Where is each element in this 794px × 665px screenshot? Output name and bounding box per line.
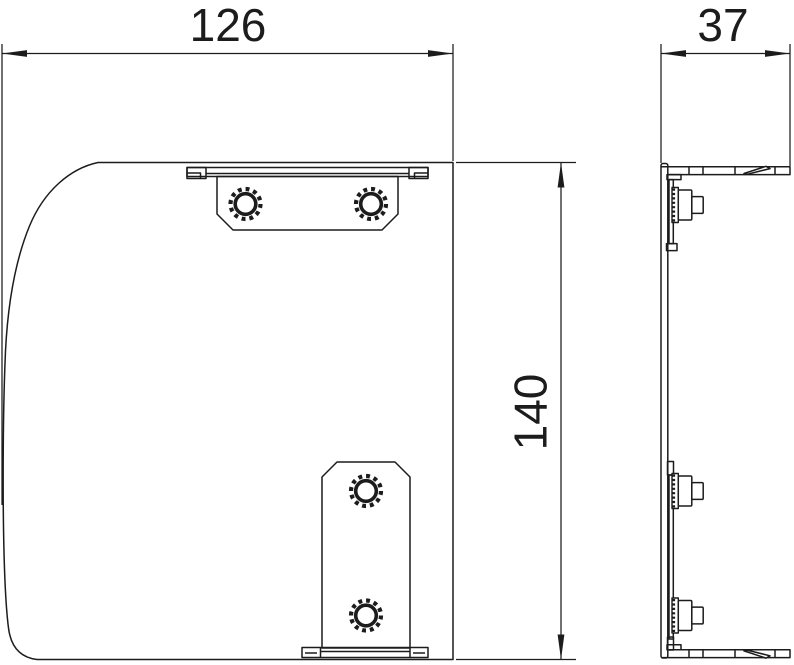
arrowhead xyxy=(765,50,790,57)
technical-drawing: 126 37 140 xyxy=(0,0,794,665)
dimension-height-label: 140 xyxy=(505,374,557,451)
front-top-bracket xyxy=(217,177,398,231)
bolt-profile xyxy=(672,474,703,509)
dimension-height: 140 xyxy=(456,163,576,660)
front-body-outline xyxy=(3,163,453,660)
bolt-profile xyxy=(672,598,703,633)
arrowhead xyxy=(558,163,565,188)
arrowhead xyxy=(558,635,565,660)
arrowhead xyxy=(428,50,453,57)
dimensions: 126 37 140 xyxy=(2,0,790,660)
side-view xyxy=(661,164,790,659)
dimension-depth-label: 37 xyxy=(697,0,748,51)
arrowhead xyxy=(661,50,686,57)
top-bracket-plate xyxy=(217,177,398,231)
arrowhead xyxy=(2,50,27,57)
dimension-depth: 37 xyxy=(661,0,790,166)
lock-washer xyxy=(351,476,381,506)
front-bottom-rail xyxy=(302,648,428,658)
top-rail-bar xyxy=(187,168,428,177)
dimension-width: 126 xyxy=(2,0,453,505)
lock-washer xyxy=(351,601,381,631)
lock-washer xyxy=(231,189,261,219)
side-plate xyxy=(661,164,668,659)
side-top-flange xyxy=(662,167,791,175)
technical-drawing-page: 126 37 140 xyxy=(0,0,794,665)
front-view xyxy=(3,163,453,660)
bottom-bracket-plate xyxy=(322,462,410,648)
side-bottom-flange xyxy=(662,650,791,658)
lock-washer xyxy=(356,189,386,219)
bolt-profile xyxy=(672,188,703,223)
front-bottom-bracket xyxy=(302,462,428,658)
dimension-width-label: 126 xyxy=(190,0,267,51)
